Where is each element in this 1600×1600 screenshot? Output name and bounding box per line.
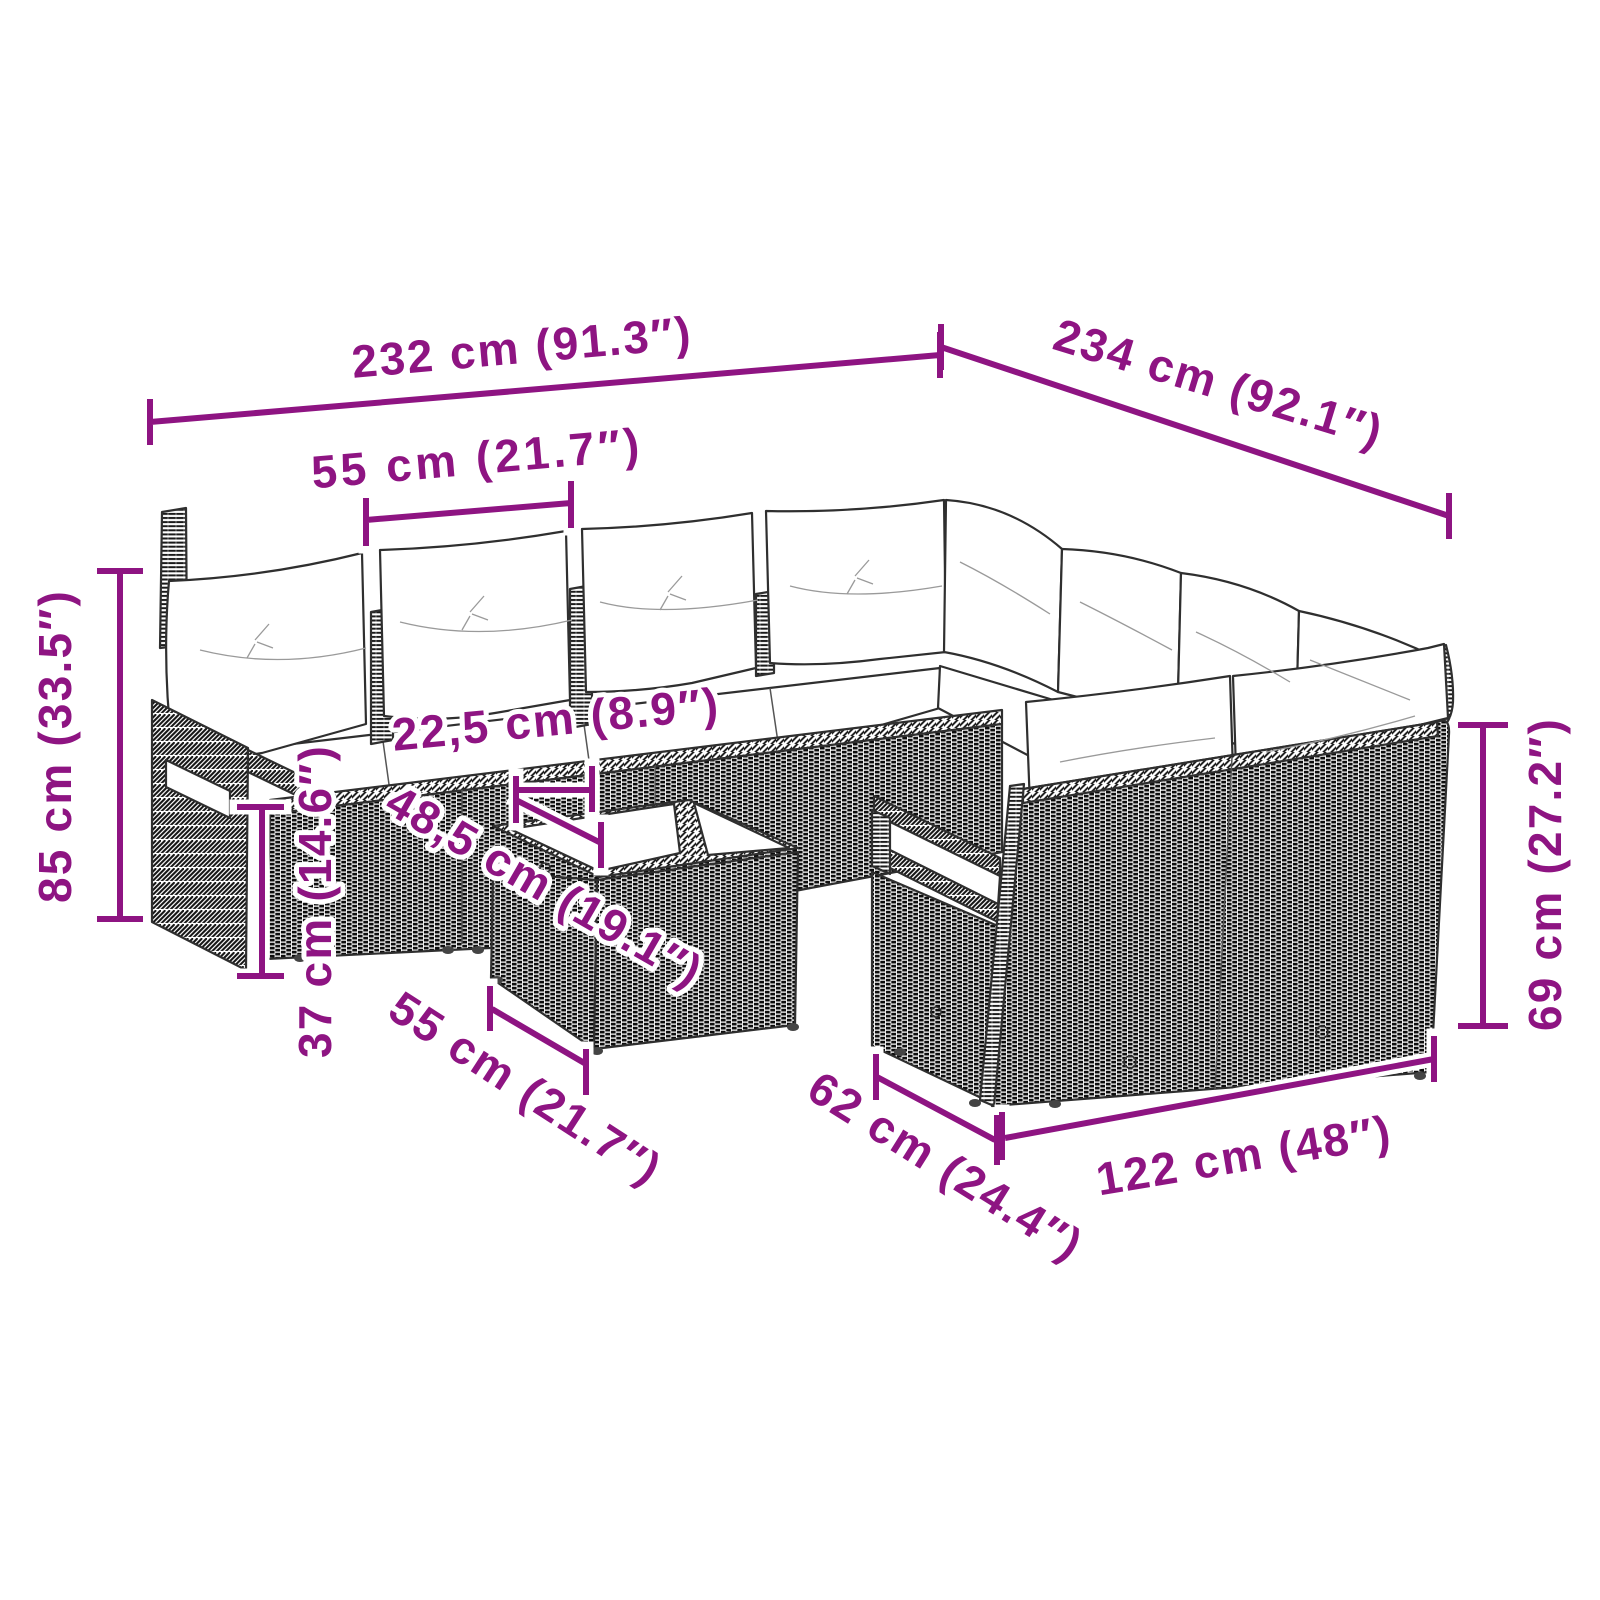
svg-text:85 cm (33.5″): 85 cm (33.5″) xyxy=(29,589,81,903)
svg-text:37 cm (14.6″): 37 cm (14.6″) xyxy=(289,744,341,1058)
svg-text:69 cm (27.2″): 69 cm (27.2″) xyxy=(1519,717,1571,1031)
